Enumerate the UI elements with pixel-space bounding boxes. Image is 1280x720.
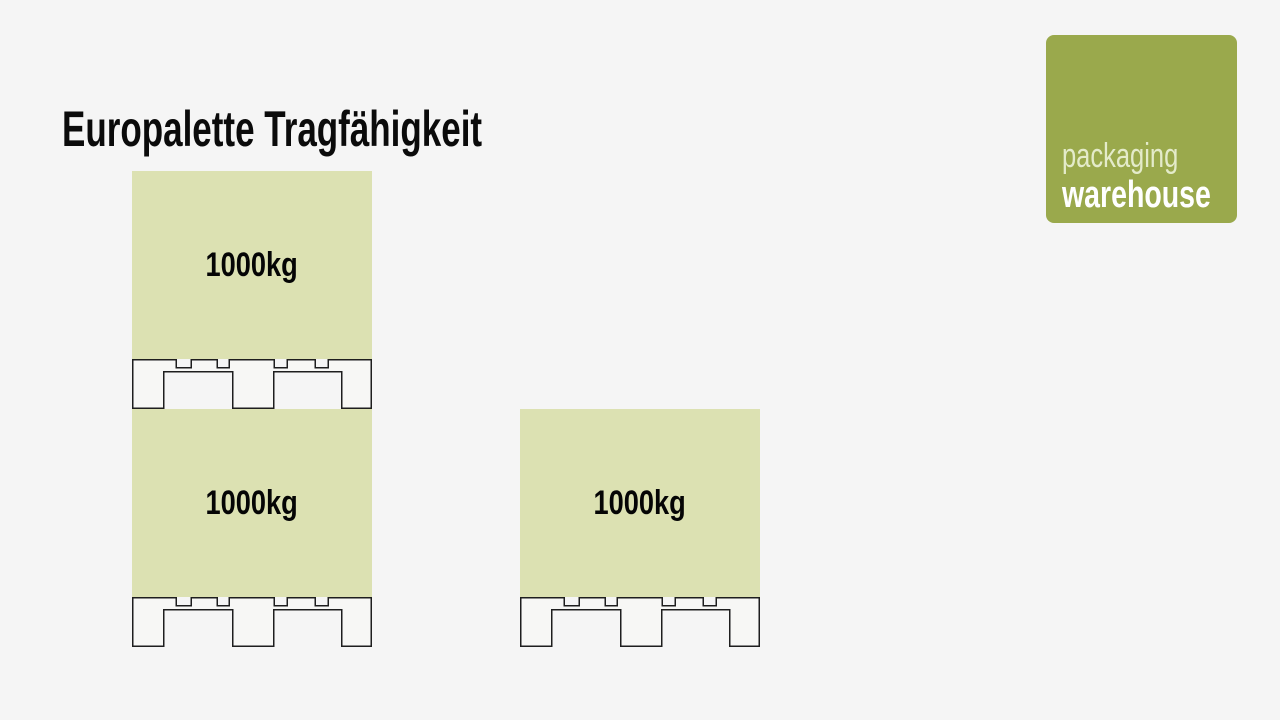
pallet-stack-single: 1000kg	[520, 409, 760, 647]
load-block: 1000kg	[132, 171, 372, 359]
brand-line-packaging: packaging	[1062, 138, 1211, 175]
europallet-graphic	[132, 359, 372, 409]
europallet-graphic	[132, 597, 372, 647]
load-label: 1000kg	[594, 484, 686, 523]
load-label: 1000kg	[206, 484, 298, 523]
europallet-graphic	[520, 597, 760, 647]
infographic-canvas: { "title": "Europalette Tragfähigkeit", …	[0, 0, 1280, 720]
brand-line-warehouse: warehouse	[1062, 175, 1211, 215]
load-block: 1000kg	[520, 409, 760, 597]
page-title: Europalette Tragfähigkeit	[62, 104, 482, 154]
load-block: 1000kg	[132, 409, 372, 597]
brand-logo: packaging warehouse	[1046, 35, 1237, 223]
pallet-stack-double: 1000kg 1000kg	[132, 171, 372, 647]
load-label: 1000kg	[206, 246, 298, 285]
brand-logo-text: packaging warehouse	[1062, 138, 1211, 215]
